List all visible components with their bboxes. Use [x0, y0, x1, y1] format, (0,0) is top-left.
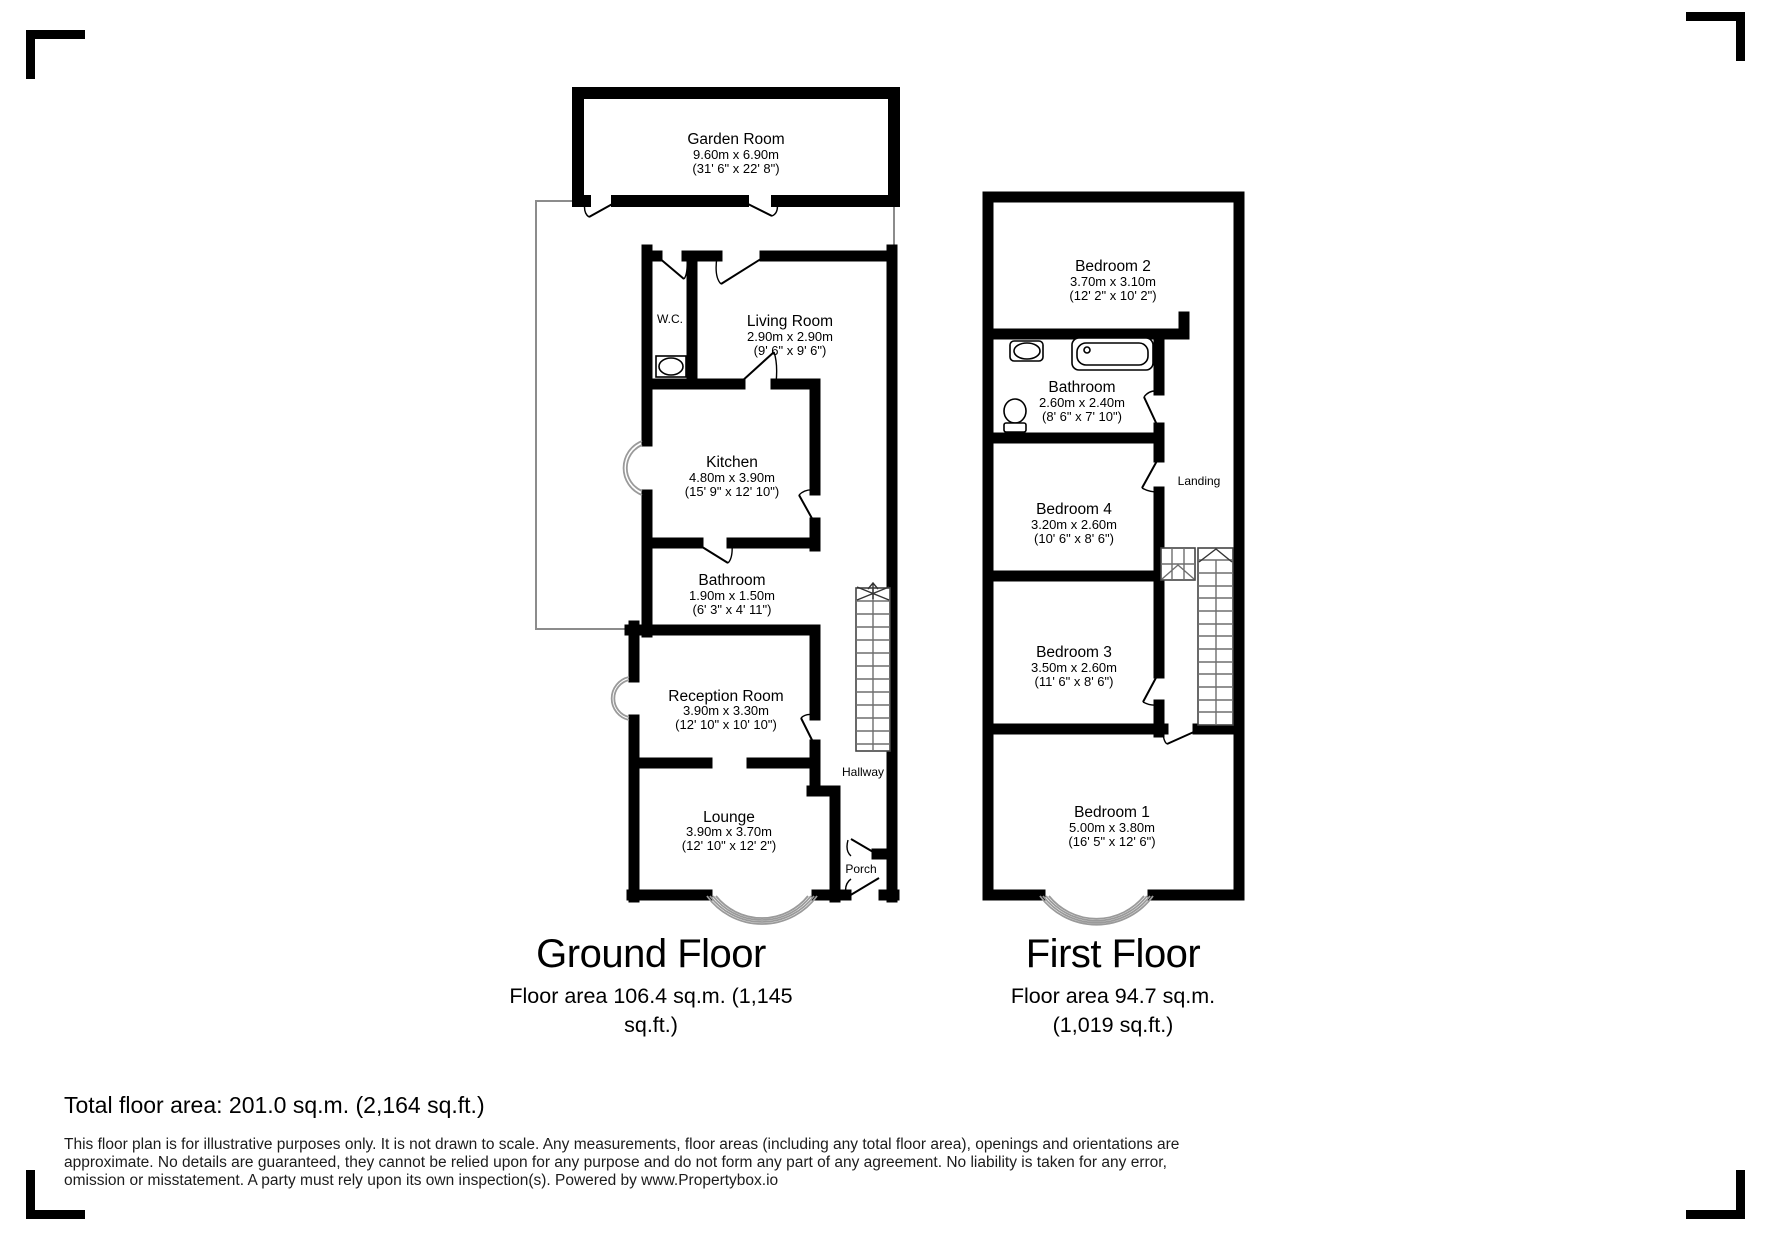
floorplan-drawing: Garden Room 9.60m x 6.90m (31' 6" x 22' …	[0, 0, 1771, 1239]
bathtub-icon	[1072, 338, 1153, 370]
room-dims-imperial: (6' 3" x 4' 11")	[693, 602, 772, 617]
room-dims-imperial: (10' 6" x 8' 6")	[1034, 531, 1114, 546]
room-label: Bedroom 4	[1036, 501, 1112, 518]
room-hallway: Hallway	[842, 765, 884, 779]
reception-bay-window	[612, 677, 629, 720]
room-dims-metric: 3.90m x 3.30m	[683, 703, 769, 718]
room-label: Bedroom 3	[1036, 644, 1112, 661]
room-dims-imperial: (12' 2" x 10' 2")	[1069, 288, 1156, 303]
bedroom1-bay-window	[1040, 896, 1153, 925]
floorplan-page: Garden Room 9.60m x 6.90m (31' 6" x 22' …	[0, 0, 1771, 1239]
garden-boundary-outline	[536, 201, 894, 629]
ground-floor-area-line2: sq.ft.)	[624, 1013, 678, 1037]
room-label: Porch	[845, 862, 876, 876]
summary-section: Total floor area: 201.0 sq.m. (2,164 sq.…	[64, 1092, 1179, 1189]
room-bedroom-2: Bedroom 2 3.70m x 3.10m (12' 2" x 10' 2"…	[1069, 258, 1156, 303]
room-porch: Porch	[845, 862, 876, 876]
corner-mark-bottom-right	[1686, 1170, 1745, 1219]
room-label: Bathroom	[1048, 379, 1115, 396]
floor-captions: Ground Floor Floor area 106.4 sq.m. (1,1…	[509, 932, 1215, 1037]
staircase-first	[1161, 548, 1233, 725]
room-dims-imperial: (9' 6" x 9' 6")	[754, 343, 827, 358]
room-bedroom-1: Bedroom 1 5.00m x 3.80m (16' 5" x 12' 6"…	[1068, 804, 1155, 849]
room-living-room: Living Room 2.90m x 2.90m (9' 6" x 9' 6"…	[747, 313, 833, 358]
room-label: W.C.	[657, 312, 683, 326]
toilet-icon	[1004, 399, 1026, 432]
room-dims-metric: 9.60m x 6.90m	[693, 147, 779, 162]
total-floor-area: Total floor area: 201.0 sq.m. (2,164 sq.…	[64, 1092, 485, 1118]
lounge-bay-window	[707, 896, 817, 924]
kitchen-bay-window	[624, 441, 642, 495]
room-label: Hallway	[842, 765, 884, 779]
disclaimer-line3: omission or misstatement. A party must r…	[64, 1172, 778, 1189]
room-label: Kitchen	[706, 454, 758, 471]
wc-sink-icon	[656, 356, 686, 377]
room-dims-metric: 3.50m x 2.60m	[1031, 660, 1117, 675]
first-floor-plan: Bedroom 2 3.70m x 3.10m (12' 2" x 10' 2"…	[988, 197, 1239, 925]
room-bedroom-4: Bedroom 4 3.20m x 2.60m (10' 6" x 8' 6")	[1031, 501, 1117, 546]
room-dims-imperial: (15' 9" x 12' 10")	[685, 484, 779, 499]
room-dims-imperial: (16' 5" x 12' 6")	[1068, 834, 1155, 849]
room-dims-metric: 2.60m x 2.40m	[1039, 395, 1125, 410]
room-dims-metric: 4.80m x 3.90m	[689, 470, 775, 485]
room-label: Bedroom 1	[1074, 804, 1150, 821]
ground-floor-title: Ground Floor	[536, 932, 766, 976]
room-garden-room: Garden Room 9.60m x 6.90m (31' 6" x 22' …	[687, 131, 784, 176]
room-bathroom-ground: Bathroom 1.90m x 1.50m (6' 3" x 4' 11")	[689, 572, 775, 617]
staircase-ground	[856, 583, 890, 751]
sink-icon	[1010, 341, 1043, 361]
room-dims-metric: 3.90m x 3.70m	[686, 824, 772, 839]
room-dims-metric: 3.70m x 3.10m	[1070, 274, 1156, 289]
room-bathroom-first: Bathroom 2.60m x 2.40m (8' 6" x 7' 10")	[1039, 379, 1125, 424]
room-bedroom-3: Bedroom 3 3.50m x 2.60m (11' 6" x 8' 6")	[1031, 644, 1117, 689]
room-label: Landing	[1178, 474, 1221, 488]
room-dims-metric: 3.20m x 2.60m	[1031, 517, 1117, 532]
corner-mark-top-left	[26, 30, 85, 79]
corner-mark-top-right	[1686, 12, 1745, 61]
disclaimer-line1: This floor plan is for illustrative purp…	[64, 1136, 1179, 1153]
room-lounge: Lounge 3.90m x 3.70m (12' 10" x 12' 2")	[682, 809, 776, 853]
first-floor-title: First Floor	[1026, 932, 1201, 976]
room-dims-metric: 2.90m x 2.90m	[747, 329, 833, 344]
room-dims-imperial: (31' 6" x 22' 8")	[692, 161, 779, 176]
first-floor-area-line1: Floor area 94.7 sq.m.	[1011, 984, 1215, 1008]
room-label: Bedroom 2	[1075, 258, 1151, 275]
room-dims-metric: 5.00m x 3.80m	[1069, 820, 1155, 835]
room-dims-imperial: (12' 10" x 10' 10")	[675, 717, 777, 732]
room-label: Living Room	[747, 313, 833, 330]
room-dims-imperial: (8' 6" x 7' 10")	[1042, 409, 1122, 424]
ground-floor-area-line1: Floor area 106.4 sq.m. (1,145	[509, 984, 792, 1008]
room-dims-metric: 1.90m x 1.50m	[689, 588, 775, 603]
room-kitchen: Kitchen 4.80m x 3.90m (15' 9" x 12' 10")	[685, 454, 779, 499]
room-dims-imperial: (11' 6" x 8' 6")	[1035, 674, 1114, 689]
first-floor-area-line2: (1,019 sq.ft.)	[1053, 1013, 1174, 1037]
room-wc: W.C.	[657, 312, 683, 326]
room-dims-imperial: (12' 10" x 12' 2")	[682, 838, 776, 853]
room-landing: Landing	[1178, 474, 1221, 488]
ground-floor-plan: Garden Room 9.60m x 6.90m (31' 6" x 22' …	[536, 93, 894, 924]
room-reception-room: Reception Room 3.90m x 3.30m (12' 10" x …	[668, 688, 783, 732]
room-label: Bathroom	[698, 572, 765, 589]
disclaimer-line2: approximate. No details are guaranteed, …	[64, 1154, 1167, 1171]
room-label: Garden Room	[687, 131, 784, 148]
